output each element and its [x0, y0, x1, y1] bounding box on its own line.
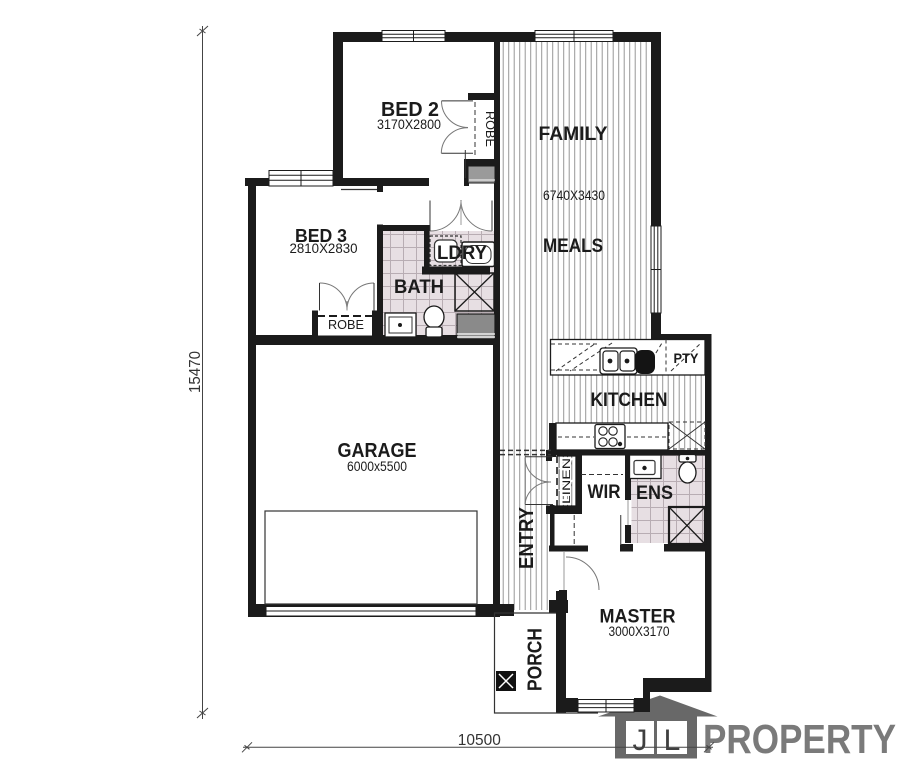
svg-text:ENS: ENS: [636, 483, 673, 504]
svg-text:LINEN: LINEN: [561, 458, 573, 504]
svg-text:J: J: [633, 724, 648, 757]
svg-text:ROBE: ROBE: [483, 111, 498, 147]
svg-text:ROBE: ROBE: [328, 317, 364, 332]
svg-text:KITCHEN: KITCHEN: [591, 390, 668, 411]
svg-text:L: L: [664, 724, 681, 757]
svg-text:15470: 15470: [187, 351, 204, 393]
svg-text:FAMILY: FAMILY: [539, 124, 608, 145]
svg-text:ENTRY: ENTRY: [516, 506, 538, 569]
svg-text:6740X3430: 6740X3430: [543, 188, 605, 203]
svg-text:PORCH: PORCH: [525, 628, 547, 691]
svg-text:3170X2800: 3170X2800: [377, 117, 441, 132]
svg-text:MEALS: MEALS: [543, 236, 603, 257]
svg-text:6000x5500: 6000x5500: [347, 459, 407, 474]
svg-text:3000X3170: 3000X3170: [609, 624, 670, 639]
svg-text:PROPERTY: PROPERTY: [703, 716, 896, 762]
svg-text:PTY: PTY: [674, 350, 700, 366]
svg-text:WIR: WIR: [588, 482, 621, 503]
svg-text:10500: 10500: [458, 732, 501, 749]
svg-text:BATH: BATH: [394, 277, 444, 298]
svg-text:2810X2830: 2810X2830: [290, 241, 358, 256]
svg-text:LDRY: LDRY: [437, 243, 487, 264]
